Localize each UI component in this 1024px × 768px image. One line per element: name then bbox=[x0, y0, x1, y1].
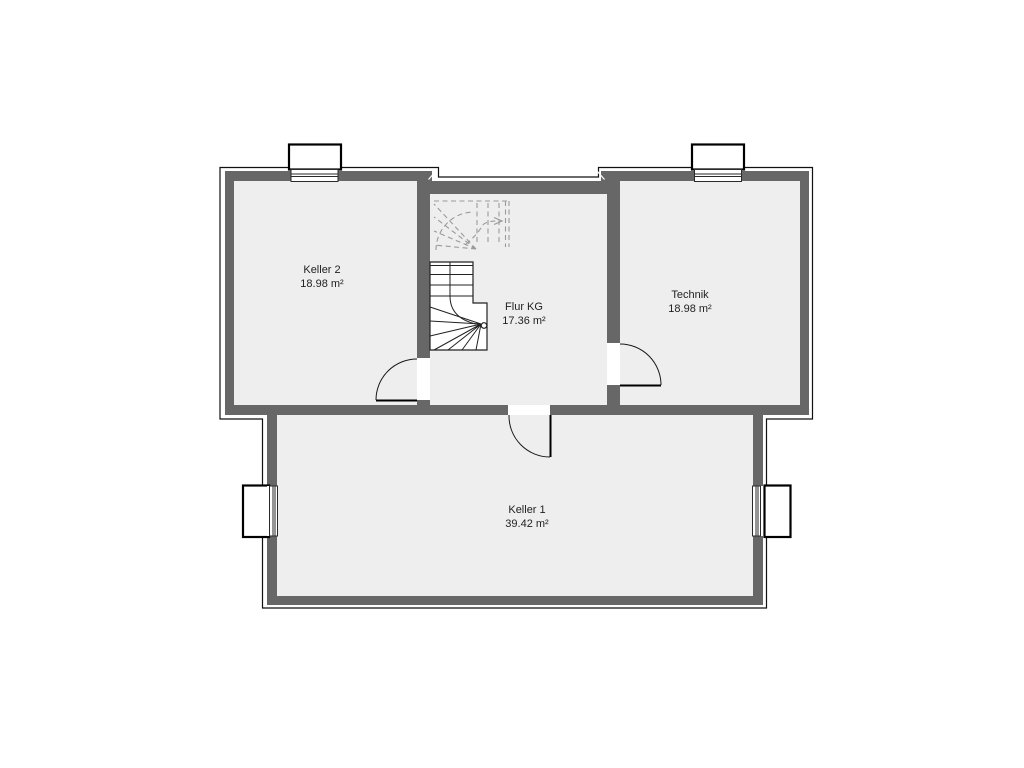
room-label-keller-2: Keller 2 18.98 m² bbox=[300, 263, 343, 291]
room-name: Technik bbox=[668, 288, 711, 302]
floor-keller2 bbox=[234, 181, 417, 405]
room-area: 17.36 m² bbox=[502, 314, 545, 328]
stair-newel-post bbox=[481, 323, 487, 329]
light-well-keller2 bbox=[289, 145, 341, 170]
room-area: 18.98 m² bbox=[300, 277, 343, 291]
room-label-keller-1: Keller 1 39.42 m² bbox=[505, 503, 548, 531]
window-keller1-left bbox=[243, 486, 278, 538]
room-name: Keller 2 bbox=[300, 263, 343, 277]
light-well-technik bbox=[692, 145, 744, 170]
window-keller2-frame bbox=[291, 170, 338, 182]
window-keller1-right bbox=[753, 486, 791, 538]
door-keller2-opening bbox=[417, 358, 430, 400]
room-label-technik: Technik 18.98 m² bbox=[668, 288, 711, 316]
window-technik-frame bbox=[695, 170, 742, 182]
light-well-keller1-right bbox=[765, 486, 791, 538]
light-well-keller1-left bbox=[243, 486, 269, 538]
room-name: Flur KG bbox=[502, 300, 545, 314]
room-area: 39.42 m² bbox=[505, 517, 548, 531]
floor-plan-drawing bbox=[0, 0, 1024, 768]
floor-plan-page: Keller 2 18.98 m² Flur KG 17.36 m² Techn… bbox=[0, 0, 1024, 768]
room-label-flur-kg: Flur KG 17.36 m² bbox=[502, 300, 545, 328]
room-area: 18.98 m² bbox=[668, 302, 711, 316]
door-keller1-opening bbox=[508, 405, 550, 415]
room-name: Keller 1 bbox=[505, 503, 548, 517]
window-keller2-top bbox=[289, 145, 341, 182]
door-technik-opening bbox=[607, 343, 620, 385]
window-technik-top bbox=[692, 145, 744, 182]
